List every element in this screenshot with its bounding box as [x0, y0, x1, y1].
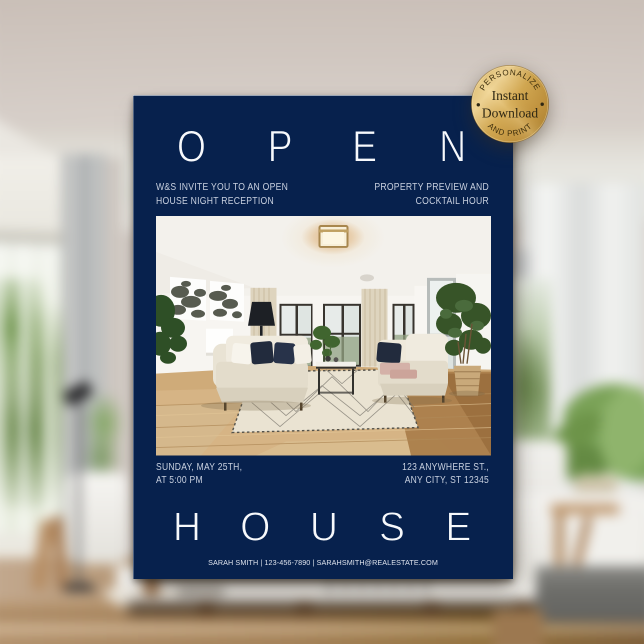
svg-text:Instant: Instant	[492, 87, 529, 102]
svg-text:Download: Download	[482, 105, 538, 120]
svg-text:U: U	[310, 505, 338, 550]
svg-text:P: P	[268, 121, 293, 171]
svg-text:O: O	[177, 121, 206, 171]
svg-text:H: H	[173, 505, 201, 550]
svg-text:N: N	[439, 121, 466, 171]
svg-text:O: O	[240, 505, 270, 550]
svg-text:S: S	[379, 505, 405, 550]
svg-text:E: E	[445, 505, 471, 550]
svg-text:E: E	[352, 121, 377, 171]
